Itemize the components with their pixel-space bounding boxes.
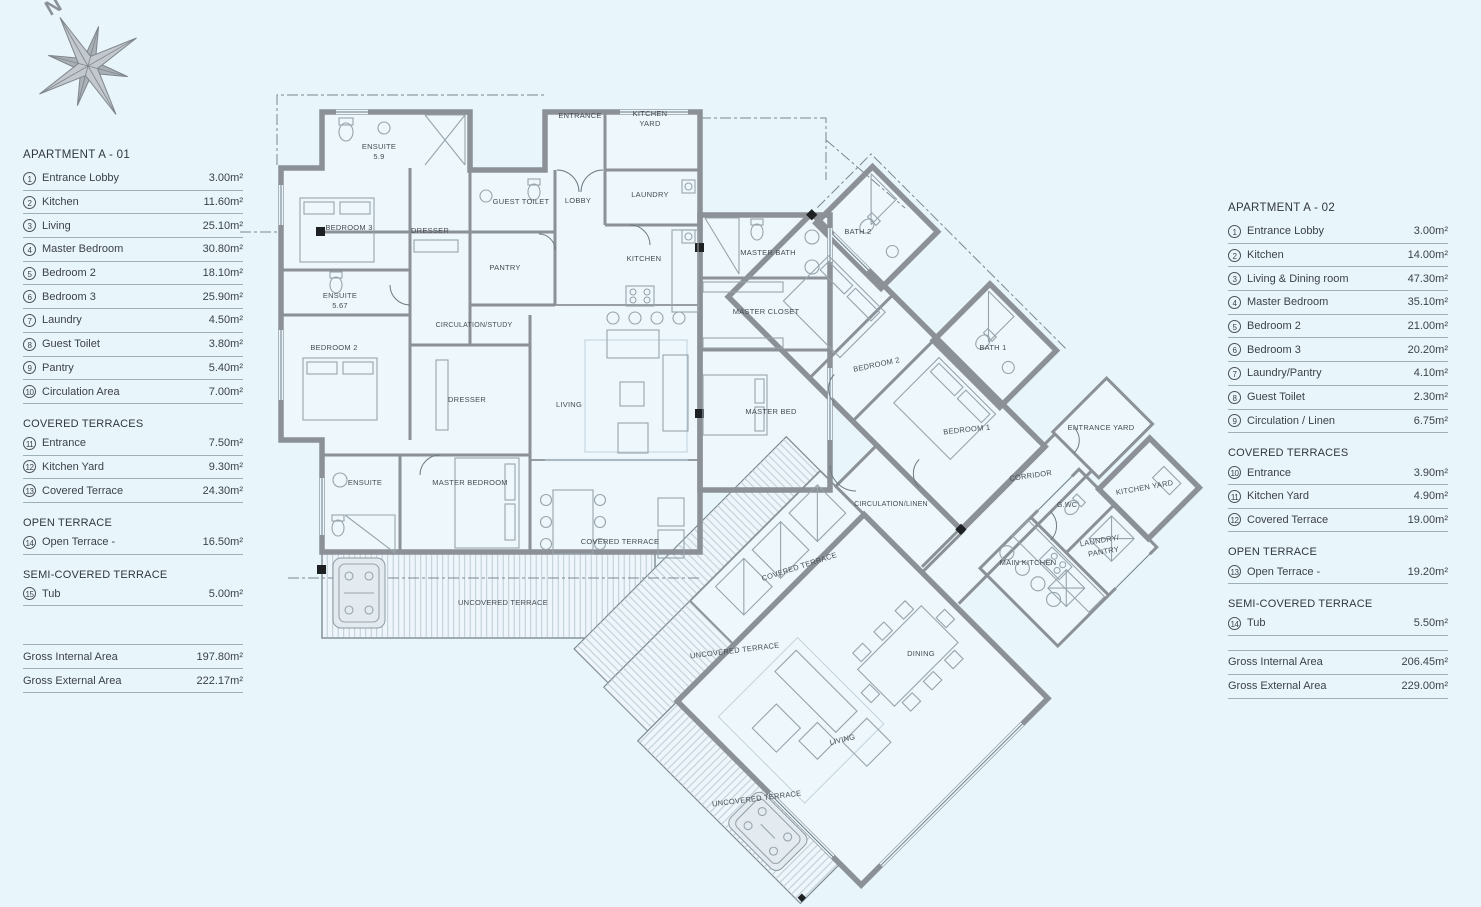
legend-apartment-a01: APARTMENT A - 01 1Entrance Lobby3.00m²2K… xyxy=(23,143,243,693)
room-label: BEDROOM 3 xyxy=(325,223,372,232)
legend-row: 6Bedroom 325.90m² xyxy=(23,285,243,309)
legend-totals: Gross Internal Area206.45m²Gross Externa… xyxy=(1228,650,1448,699)
room-label: 5.67 xyxy=(332,301,348,310)
legend-apartment-a02: APARTMENT A - 02 1Entrance Lobby3.00m²2K… xyxy=(1228,196,1448,699)
row-area-value: 3.90m² xyxy=(1414,467,1448,479)
room-label: CIRCULATION/LINEN xyxy=(854,501,928,508)
legend-row: 9Circulation / Linen6.75m² xyxy=(1228,410,1448,434)
row-number: 14 xyxy=(23,536,36,549)
row-number: 2 xyxy=(23,196,36,209)
room-label: CIRCULATION/STUDY xyxy=(436,322,513,329)
row-area-value: 11.60m² xyxy=(203,196,243,208)
row-number: 10 xyxy=(23,385,36,398)
legend-row: 12Covered Terrace19.00m² xyxy=(1228,509,1448,533)
legend-row: 10Entrance3.90m² xyxy=(1228,461,1448,485)
room-label: MAIN KITCHEN xyxy=(1000,558,1057,567)
room-label: BEDROOM 2 xyxy=(310,343,357,352)
row-label: Open Terrace - xyxy=(1247,566,1320,578)
row-label: Entrance Lobby xyxy=(42,172,119,184)
room-label: PANTRY xyxy=(489,263,520,272)
row-area-value: 19.00m² xyxy=(1408,514,1448,526)
room-label: MASTER CLOSET xyxy=(733,307,800,316)
total-label: Gross External Area xyxy=(1228,680,1326,692)
row-label: Kitchen Yard xyxy=(1247,490,1309,502)
row-number: 5 xyxy=(23,267,36,280)
row-label: Open Terrace - xyxy=(42,536,115,548)
room-label: YARD xyxy=(639,119,661,128)
legend-title-a02: APARTMENT A - 02 xyxy=(1228,196,1448,220)
legend-row: 3Living25.10m² xyxy=(23,214,243,238)
row-label: Bedroom 2 xyxy=(1247,320,1301,332)
legend-row: 12Kitchen Yard9.30m² xyxy=(23,456,243,480)
row-number: 7 xyxy=(23,314,36,327)
legend-row: 8Guest Toilet3.80m² xyxy=(23,333,243,357)
row-area-value: 14.00m² xyxy=(1408,249,1448,261)
row-number: 7 xyxy=(1228,367,1241,380)
row-label: Bedroom 2 xyxy=(42,267,96,279)
compass-rose: N xyxy=(0,0,167,145)
room-label: MASTER BED xyxy=(745,407,797,416)
row-label: Living & Dining room xyxy=(1247,273,1349,285)
row-number: 3 xyxy=(23,219,36,232)
total-label: Gross Internal Area xyxy=(23,651,118,663)
row-area-value: 9.30m² xyxy=(209,461,243,473)
row-label: Covered Terrace xyxy=(42,485,123,497)
row-area-value: 47.30m² xyxy=(1408,273,1448,285)
legend-row: 5Bedroom 218.10m² xyxy=(23,262,243,286)
row-area-value: 6.75m² xyxy=(1414,415,1448,427)
row-area-value: 16.50m² xyxy=(203,536,243,548)
room-label: DINING xyxy=(907,649,935,658)
row-label: Kitchen xyxy=(1247,249,1284,261)
row-label: Tub xyxy=(42,588,61,600)
total-row: Gross External Area229.00m² xyxy=(1228,675,1448,699)
row-label: Master Bedroom xyxy=(1247,296,1328,308)
row-area-value: 3.00m² xyxy=(1414,225,1448,237)
legend-section-header: SEMI-COVERED TERRACE xyxy=(23,563,243,583)
row-label: Living xyxy=(42,220,71,232)
row-label: Laundry xyxy=(42,314,82,326)
legend-row: 7Laundry/Pantry4.10m² xyxy=(1228,362,1448,386)
row-area-value: 5.50m² xyxy=(1414,617,1448,629)
legend-section-header: COVERED TERRACES xyxy=(1228,441,1448,461)
room-label: ENTRANCE YARD xyxy=(1068,423,1135,432)
legend-title-a01: APARTMENT A - 01 xyxy=(23,143,243,167)
legend-row: 14Tub5.50m² xyxy=(1228,612,1448,636)
row-label: Circulation Area xyxy=(42,386,120,398)
row-area-value: 30.80m² xyxy=(203,243,243,255)
total-row: Gross Internal Area206.45m² xyxy=(1228,650,1448,675)
row-number: 6 xyxy=(23,290,36,303)
legend-row: 2Kitchen14.00m² xyxy=(1228,244,1448,268)
row-number: 10 xyxy=(1228,466,1241,479)
row-number: 1 xyxy=(1228,225,1241,238)
legend-row: 5Bedroom 221.00m² xyxy=(1228,315,1448,339)
row-number: 9 xyxy=(23,361,36,374)
legend-row: 13Covered Terrace24.30m² xyxy=(23,479,243,503)
row-area-value: 21.00m² xyxy=(1408,320,1448,332)
tub-icon xyxy=(333,558,385,628)
row-area-value: 20.20m² xyxy=(1408,344,1448,356)
row-number: 13 xyxy=(23,484,36,497)
floor-plan-sheet: N xyxy=(0,0,1481,907)
row-area-value: 19.20m² xyxy=(1408,566,1448,578)
row-area-value: 5.40m² xyxy=(209,362,243,374)
legend-row: 8Guest Toilet2.30m² xyxy=(1228,386,1448,410)
row-label: Bedroom 3 xyxy=(42,291,96,303)
total-label: Gross External Area xyxy=(23,675,121,687)
room-label: MASTER BATH xyxy=(740,248,796,257)
row-number: 1 xyxy=(23,172,36,185)
room-label: MASTER BEDROOM xyxy=(432,478,508,487)
row-label: Bedroom 3 xyxy=(1247,344,1301,356)
row-area-value: 4.50m² xyxy=(209,314,243,326)
total-label: Gross Internal Area xyxy=(1228,656,1323,668)
row-area-value: 24.30m² xyxy=(203,485,243,497)
room-label: KITCHEN xyxy=(627,254,662,263)
row-number: 8 xyxy=(1228,391,1241,404)
row-label: Circulation / Linen xyxy=(1247,415,1335,427)
room-label: 5.9 xyxy=(373,152,384,161)
row-number: 11 xyxy=(1228,490,1241,503)
room-label: GUEST TOILET xyxy=(493,197,550,206)
row-label: Master Bedroom xyxy=(42,243,123,255)
row-area-value: 25.90m² xyxy=(203,291,243,303)
room-label: DRESSER xyxy=(448,395,486,404)
legend-row: 4Master Bedroom35.10m² xyxy=(1228,291,1448,315)
row-number: 9 xyxy=(1228,414,1241,427)
room-label: DRESSER xyxy=(411,226,449,235)
row-label: Guest Toilet xyxy=(42,338,100,350)
row-label: Entrance xyxy=(1247,467,1291,479)
row-number: 4 xyxy=(23,243,36,256)
legend-row: 2Kitchen11.60m² xyxy=(23,191,243,215)
row-area-value: 35.10m² xyxy=(1408,296,1448,308)
room-label: ENSUITE xyxy=(323,291,357,300)
row-number: 8 xyxy=(23,338,36,351)
room-label: BATH 2 xyxy=(844,227,871,236)
row-label: Entrance xyxy=(42,437,86,449)
legend-row: 10Circulation Area7.00m² xyxy=(23,380,243,404)
legend-row: 13Open Terrace -19.20m² xyxy=(1228,560,1448,584)
legend-row: 11Entrance7.50m² xyxy=(23,432,243,456)
total-row: Gross Internal Area197.80m² xyxy=(23,644,243,669)
row-number: 5 xyxy=(1228,320,1241,333)
legend-section-header: OPEN TERRACE xyxy=(1228,540,1448,560)
row-area-value: 4.10m² xyxy=(1414,367,1448,379)
row-number: 11 xyxy=(23,437,36,450)
row-number: 15 xyxy=(23,587,36,600)
row-number: 6 xyxy=(1228,343,1241,356)
row-area-value: 4.90m² xyxy=(1414,490,1448,502)
row-label: Laundry/Pantry xyxy=(1247,367,1322,379)
row-area-value: 5.00m² xyxy=(209,588,243,600)
row-number: 12 xyxy=(23,460,36,473)
room-label: BATH 1 xyxy=(979,343,1006,352)
room-label: LIVING xyxy=(556,400,582,409)
legend-section-header: COVERED TERRACES xyxy=(23,412,243,432)
north-label: N xyxy=(41,0,66,21)
total-row: Gross External Area222.17m² xyxy=(23,669,243,693)
legend-section-header: OPEN TERRACE xyxy=(23,511,243,531)
row-area-value: 3.00m² xyxy=(209,172,243,184)
row-number: 4 xyxy=(1228,296,1241,309)
room-label: LOBBY xyxy=(565,196,591,205)
row-label: Tub xyxy=(1247,617,1266,629)
row-label: Kitchen xyxy=(42,196,79,208)
legend-row: 11Kitchen Yard4.90m² xyxy=(1228,485,1448,509)
row-area-value: 7.50m² xyxy=(209,437,243,449)
total-value: 197.80m² xyxy=(197,651,243,663)
row-number: 3 xyxy=(1228,272,1241,285)
row-label: Guest Toilet xyxy=(1247,391,1305,403)
room-label: G.WC xyxy=(1057,502,1077,509)
row-label: Covered Terrace xyxy=(1247,514,1328,526)
row-area-value: 2.30m² xyxy=(1414,391,1448,403)
total-value: 206.45m² xyxy=(1402,656,1448,668)
room-label: LAUNDRY xyxy=(631,190,668,199)
legend-row: 15Tub5.00m² xyxy=(23,583,243,607)
room-label: ENSUITE xyxy=(362,142,396,151)
room-label: KITCHEN xyxy=(633,109,668,118)
room-label: UNCOVERED TERRACE xyxy=(458,598,548,607)
row-area-value: 7.00m² xyxy=(209,386,243,398)
row-area-value: 25.10m² xyxy=(203,220,243,232)
row-number: 13 xyxy=(1228,565,1241,578)
row-label: Entrance Lobby xyxy=(1247,225,1324,237)
row-area-value: 18.10m² xyxy=(203,267,243,279)
legend-section-header: SEMI-COVERED TERRACE xyxy=(1228,592,1448,612)
row-number: 14 xyxy=(1228,617,1241,630)
room-label: ENSUITE xyxy=(348,478,382,487)
legend-row: 1Entrance Lobby3.00m² xyxy=(23,167,243,191)
row-number: 12 xyxy=(1228,513,1241,526)
legend-totals: Gross Internal Area197.80m²Gross Externa… xyxy=(23,644,243,693)
legend-row: 9Pantry5.40m² xyxy=(23,357,243,381)
legend-row: 6Bedroom 320.20m² xyxy=(1228,338,1448,362)
legend-row: 14Open Terrace -16.50m² xyxy=(23,531,243,555)
total-value: 222.17m² xyxy=(197,675,243,687)
row-area-value: 3.80m² xyxy=(209,338,243,350)
row-label: Pantry xyxy=(42,362,74,374)
room-label: ENTRANCE xyxy=(558,111,601,120)
legend-row: 1Entrance Lobby3.00m² xyxy=(1228,220,1448,244)
row-label: Kitchen Yard xyxy=(42,461,104,473)
row-number: 2 xyxy=(1228,249,1241,262)
legend-row: 3Living & Dining room47.30m² xyxy=(1228,267,1448,291)
legend-row: 7Laundry4.50m² xyxy=(23,309,243,333)
legend-row: 4Master Bedroom30.80m² xyxy=(23,238,243,262)
room-label: COVERED TERRACE xyxy=(581,537,660,546)
total-value: 229.00m² xyxy=(1402,680,1448,692)
